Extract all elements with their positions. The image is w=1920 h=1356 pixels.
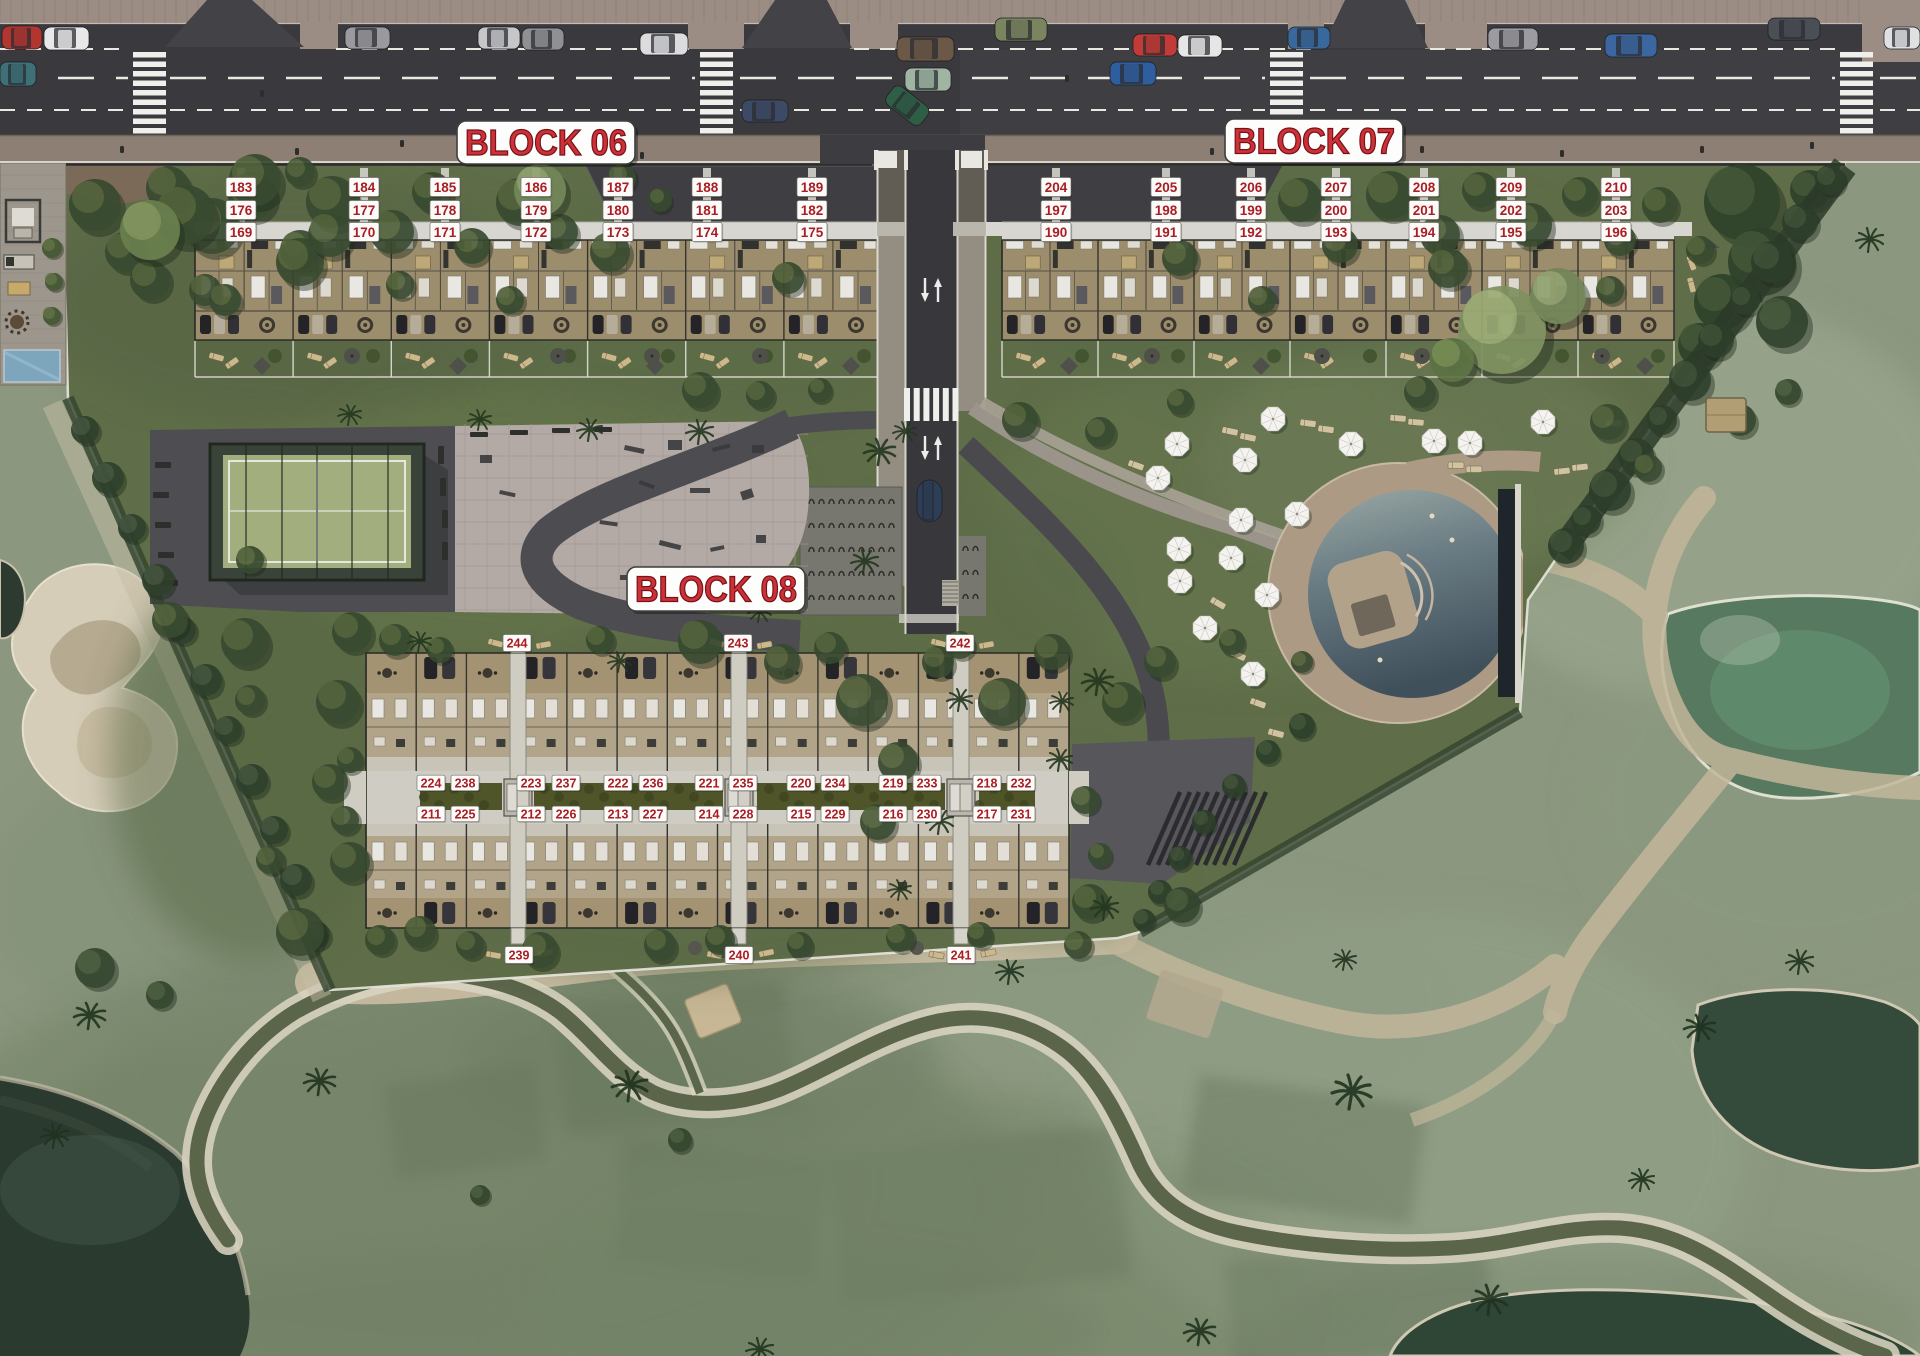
svg-text:200: 200 (1325, 203, 1348, 218)
svg-text:207: 207 (1325, 180, 1348, 195)
svg-text:233: 233 (917, 777, 938, 791)
svg-text:241: 241 (951, 949, 972, 963)
svg-text:213: 213 (608, 808, 629, 822)
svg-text:178: 178 (434, 203, 457, 218)
svg-text:174: 174 (696, 225, 719, 240)
svg-text:176: 176 (230, 203, 253, 218)
svg-text:170: 170 (353, 225, 376, 240)
svg-text:235: 235 (733, 777, 754, 791)
svg-text:236: 236 (643, 777, 664, 791)
svg-text:206: 206 (1240, 180, 1263, 195)
svg-text:208: 208 (1413, 180, 1436, 195)
svg-text:224: 224 (421, 777, 442, 791)
svg-text:172: 172 (525, 225, 548, 240)
svg-text:222: 222 (608, 777, 629, 791)
svg-text:185: 185 (434, 180, 457, 195)
svg-text:205: 205 (1155, 180, 1178, 195)
svg-text:217: 217 (977, 808, 998, 822)
svg-text:199: 199 (1240, 203, 1263, 218)
svg-text:220: 220 (791, 777, 812, 791)
svg-text:209: 209 (1500, 180, 1523, 195)
svg-text:BLOCK 06: BLOCK 06 (465, 122, 627, 163)
svg-text:BLOCK 07: BLOCK 07 (1233, 121, 1395, 162)
svg-text:180: 180 (607, 203, 630, 218)
svg-text:218: 218 (977, 777, 998, 791)
svg-text:182: 182 (801, 203, 824, 218)
svg-text:177: 177 (353, 203, 376, 218)
svg-text:187: 187 (607, 180, 630, 195)
svg-text:193: 193 (1325, 225, 1348, 240)
svg-text:186: 186 (525, 180, 548, 195)
svg-text:188: 188 (696, 180, 719, 195)
svg-text:230: 230 (917, 808, 938, 822)
svg-text:173: 173 (607, 225, 630, 240)
svg-text:210: 210 (1605, 180, 1628, 195)
svg-text:237: 237 (556, 777, 577, 791)
svg-text:231: 231 (1011, 808, 1032, 822)
svg-text:201: 201 (1413, 203, 1436, 218)
svg-text:184: 184 (353, 180, 376, 195)
svg-text:183: 183 (230, 180, 253, 195)
svg-text:243: 243 (728, 637, 749, 651)
svg-text:244: 244 (507, 637, 528, 651)
svg-text:179: 179 (525, 203, 548, 218)
svg-text:204: 204 (1045, 180, 1068, 195)
svg-text:221: 221 (699, 777, 720, 791)
svg-text:226: 226 (556, 808, 577, 822)
svg-text:181: 181 (696, 203, 719, 218)
svg-text:194: 194 (1413, 225, 1436, 240)
svg-text:189: 189 (801, 180, 824, 195)
svg-text:175: 175 (801, 225, 824, 240)
svg-text:225: 225 (455, 808, 476, 822)
svg-text:191: 191 (1155, 225, 1178, 240)
svg-text:227: 227 (643, 808, 664, 822)
svg-text:195: 195 (1500, 225, 1523, 240)
svg-text:223: 223 (521, 777, 542, 791)
svg-text:242: 242 (950, 637, 971, 651)
svg-text:234: 234 (825, 777, 846, 791)
svg-text:197: 197 (1045, 203, 1068, 218)
svg-text:171: 171 (434, 225, 457, 240)
svg-text:215: 215 (791, 808, 812, 822)
svg-text:240: 240 (729, 949, 750, 963)
svg-text:216: 216 (883, 808, 904, 822)
svg-text:169: 169 (230, 225, 253, 240)
svg-text:232: 232 (1011, 777, 1032, 791)
svg-text:198: 198 (1155, 203, 1178, 218)
svg-text:219: 219 (883, 777, 904, 791)
svg-text:BLOCK 08: BLOCK 08 (635, 569, 797, 610)
svg-text:190: 190 (1045, 225, 1068, 240)
svg-text:203: 203 (1605, 203, 1628, 218)
svg-text:202: 202 (1500, 203, 1523, 218)
svg-text:229: 229 (825, 808, 846, 822)
svg-text:196: 196 (1605, 225, 1628, 240)
svg-text:238: 238 (455, 777, 476, 791)
svg-text:211: 211 (421, 808, 441, 822)
svg-text:214: 214 (699, 808, 720, 822)
svg-text:212: 212 (521, 808, 542, 822)
svg-text:239: 239 (509, 949, 530, 963)
svg-text:228: 228 (733, 808, 754, 822)
svg-text:192: 192 (1240, 225, 1263, 240)
